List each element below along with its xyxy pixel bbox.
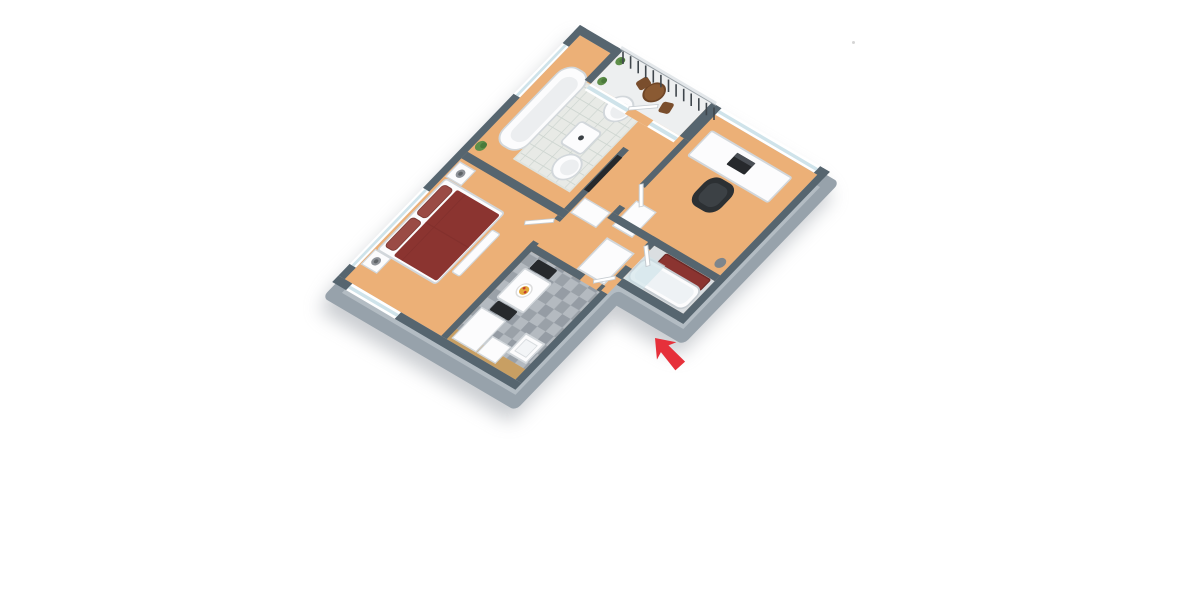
railing-posts [623, 52, 714, 121]
floor-plan-canvas [0, 0, 1200, 600]
overlay [0, 0, 1200, 600]
artifact-dot [852, 41, 855, 44]
balcony-railing [621, 48, 716, 121]
entrance-arrow [645, 329, 690, 374]
